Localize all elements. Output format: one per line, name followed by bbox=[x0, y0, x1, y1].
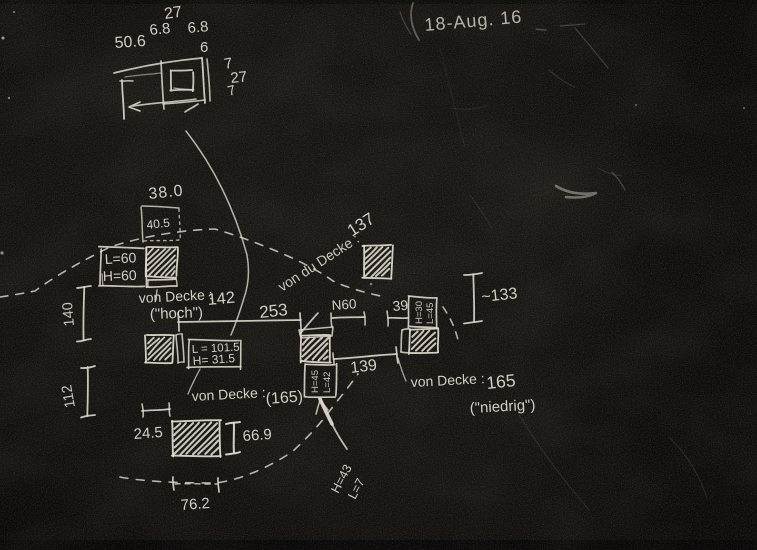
svg-text:66.9: 66.9 bbox=[242, 426, 272, 445]
svg-text:L=60: L=60 bbox=[104, 249, 137, 267]
svg-text:6.8: 6.8 bbox=[187, 18, 209, 37]
svg-text:H=45: H=45 bbox=[310, 370, 321, 393]
svg-text:253: 253 bbox=[258, 300, 288, 322]
svg-text:140: 140 bbox=[60, 302, 78, 328]
svg-text:N60: N60 bbox=[331, 296, 357, 313]
svg-text:50.6: 50.6 bbox=[114, 33, 146, 52]
svg-text:40.5: 40.5 bbox=[146, 216, 171, 232]
svg-text:6.8: 6.8 bbox=[149, 20, 172, 39]
svg-text:139: 139 bbox=[349, 357, 378, 377]
svg-text:165: 165 bbox=[485, 370, 516, 393]
svg-text:("hoch"): ("hoch") bbox=[150, 304, 204, 323]
svg-text:76.2: 76.2 bbox=[180, 495, 210, 514]
svg-text:("niedrig"): ("niedrig") bbox=[469, 397, 535, 417]
svg-text:(165): (165) bbox=[265, 388, 303, 408]
svg-text:24.5: 24.5 bbox=[133, 424, 163, 443]
svg-text:H=30: H=30 bbox=[414, 301, 425, 324]
svg-text:L=42: L=42 bbox=[322, 372, 333, 393]
svg-text:H= 31.5: H= 31.5 bbox=[192, 351, 236, 368]
svg-text:H=60: H=60 bbox=[103, 267, 138, 284]
svg-text:142: 142 bbox=[207, 289, 236, 309]
svg-text:39: 39 bbox=[392, 297, 409, 314]
svg-text:L=45: L=45 bbox=[425, 303, 436, 324]
svg-text:6: 6 bbox=[200, 39, 208, 56]
